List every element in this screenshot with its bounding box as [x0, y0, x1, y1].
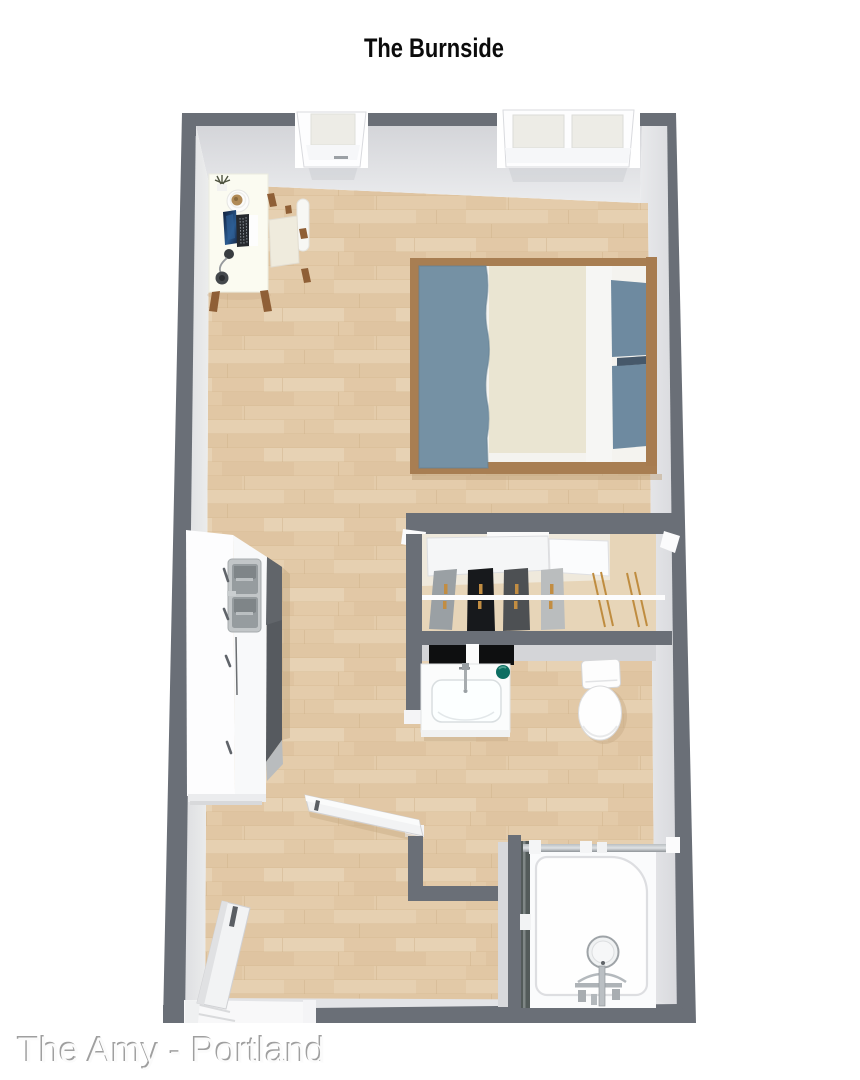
svg-text:The Burnside: The Burnside — [364, 33, 504, 63]
svg-text:The Amy - Portland: The Amy - Portland — [18, 1030, 326, 1071]
